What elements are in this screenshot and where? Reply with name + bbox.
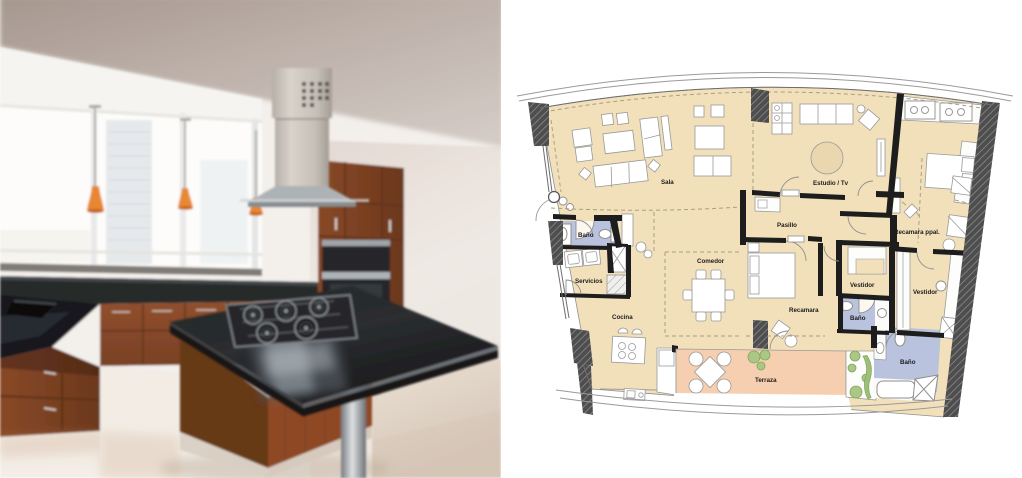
- svg-text:Estudio / Tv: Estudio / Tv: [813, 180, 849, 187]
- svg-text:Vestidor: Vestidor: [913, 289, 938, 296]
- svg-text:Recamara: Recamara: [789, 307, 819, 314]
- svg-text:Terraza: Terraza: [755, 377, 777, 384]
- svg-text:Vestidor: Vestidor: [850, 282, 875, 289]
- svg-text:Cocina: Cocina: [612, 314, 633, 321]
- svg-text:Baño: Baño: [850, 315, 866, 322]
- svg-text:Recamara ppal.: Recamara ppal.: [894, 229, 940, 236]
- svg-text:Sala: Sala: [661, 179, 674, 186]
- svg-text:Baño: Baño: [900, 359, 916, 366]
- svg-text:Servicios: Servicios: [575, 278, 603, 285]
- svg-text:Comedor: Comedor: [697, 258, 725, 265]
- svg-text:Baño: Baño: [578, 232, 594, 239]
- svg-text:Pasillo: Pasillo: [777, 222, 797, 229]
